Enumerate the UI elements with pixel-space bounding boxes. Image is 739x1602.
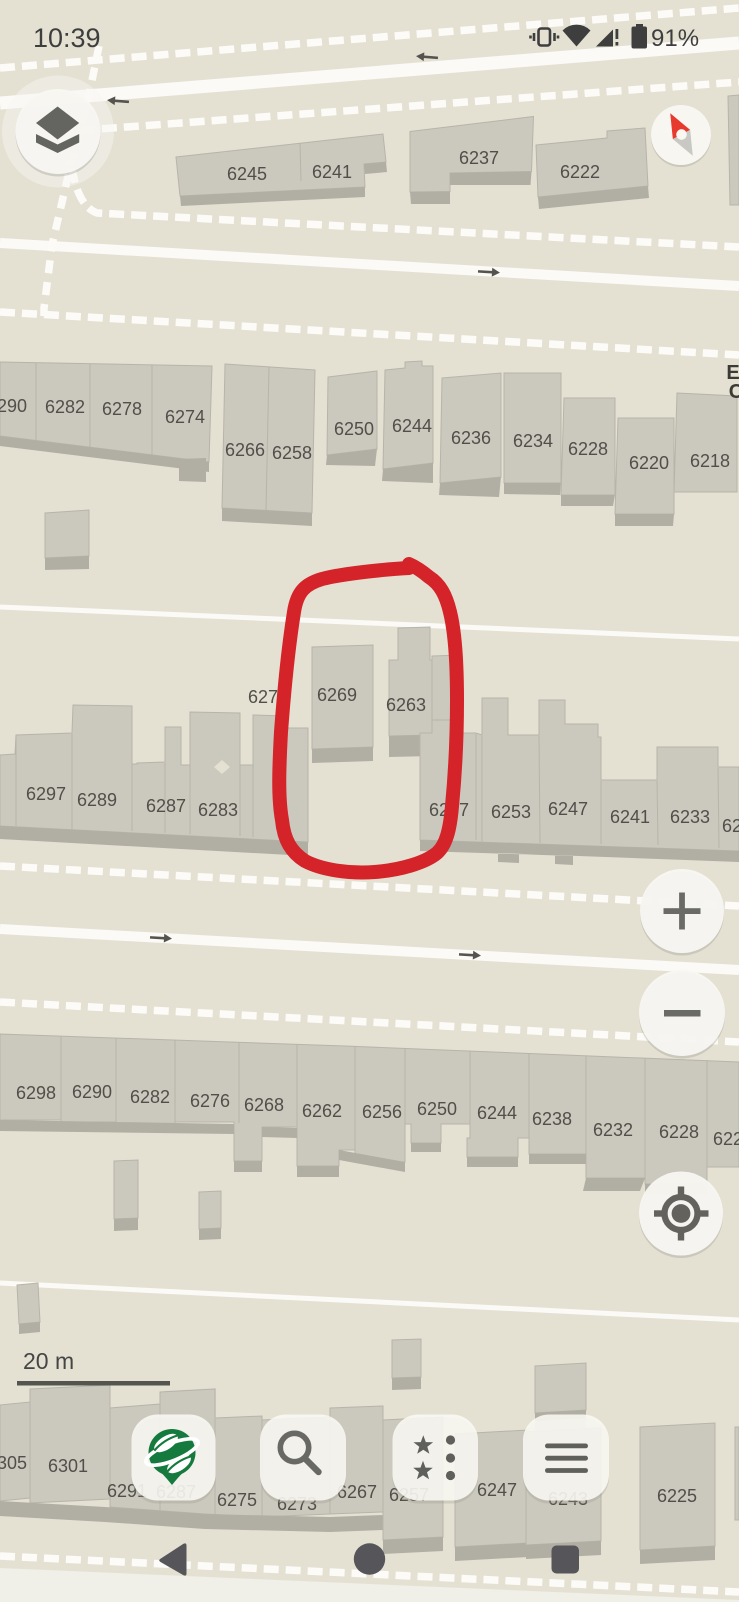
svg-text:6250: 6250 (417, 1099, 457, 1119)
svg-text:6222: 6222 (560, 162, 600, 182)
svg-text:6236: 6236 (451, 428, 491, 448)
svg-text:622: 622 (713, 1129, 739, 1149)
svg-text:6268: 6268 (244, 1095, 284, 1115)
svg-text:6258: 6258 (272, 443, 312, 463)
svg-text:6297: 6297 (26, 784, 66, 804)
svg-text:6290: 6290 (72, 1082, 112, 1102)
svg-text:6253: 6253 (491, 802, 531, 822)
svg-text:6276: 6276 (190, 1091, 230, 1111)
svg-text:6237: 6237 (459, 148, 499, 168)
svg-text:6275: 6275 (217, 1490, 257, 1510)
svg-text:6228: 6228 (568, 439, 608, 459)
svg-text:6232: 6232 (593, 1120, 633, 1140)
svg-text:6241: 6241 (610, 807, 650, 827)
svg-text:6263: 6263 (386, 695, 426, 715)
svg-text:305: 305 (0, 1453, 27, 1473)
svg-text:6218: 6218 (690, 451, 730, 471)
svg-text:6238: 6238 (532, 1109, 572, 1129)
svg-text:6228: 6228 (659, 1122, 699, 1142)
svg-text:6274: 6274 (165, 407, 205, 427)
svg-text:6283: 6283 (198, 800, 238, 820)
svg-text:6282: 6282 (45, 397, 85, 417)
svg-text:627: 627 (248, 687, 278, 707)
svg-text:6289: 6289 (77, 790, 117, 810)
svg-text:6301: 6301 (48, 1456, 88, 1476)
svg-text:6266: 6266 (225, 440, 265, 460)
svg-text:6225: 6225 (657, 1486, 697, 1506)
svg-text:6247: 6247 (548, 799, 588, 819)
svg-text:6298: 6298 (16, 1083, 56, 1103)
svg-text:6282: 6282 (130, 1087, 170, 1107)
svg-text:6269: 6269 (317, 685, 357, 705)
svg-text:20 m: 20 m (23, 1348, 74, 1374)
svg-text:10:39: 10:39 (33, 23, 101, 53)
svg-text:6233: 6233 (670, 807, 710, 827)
svg-text:6244: 6244 (392, 416, 432, 436)
svg-text:6287: 6287 (146, 796, 186, 816)
svg-text:6247: 6247 (477, 1480, 517, 1500)
svg-text:62: 62 (722, 816, 739, 836)
svg-text:6220: 6220 (629, 453, 669, 473)
svg-text:6241: 6241 (312, 162, 352, 182)
svg-text:6245: 6245 (227, 164, 267, 184)
svg-text:6250: 6250 (334, 419, 374, 439)
svg-text:6244: 6244 (477, 1103, 517, 1123)
svg-text:6234: 6234 (513, 431, 553, 451)
svg-text:290: 290 (0, 396, 27, 416)
svg-text:C: C (729, 381, 739, 403)
svg-text:91%: 91% (651, 25, 699, 52)
svg-text:6256: 6256 (362, 1102, 402, 1122)
svg-text:6262: 6262 (302, 1101, 342, 1121)
svg-text:6278: 6278 (102, 399, 142, 419)
